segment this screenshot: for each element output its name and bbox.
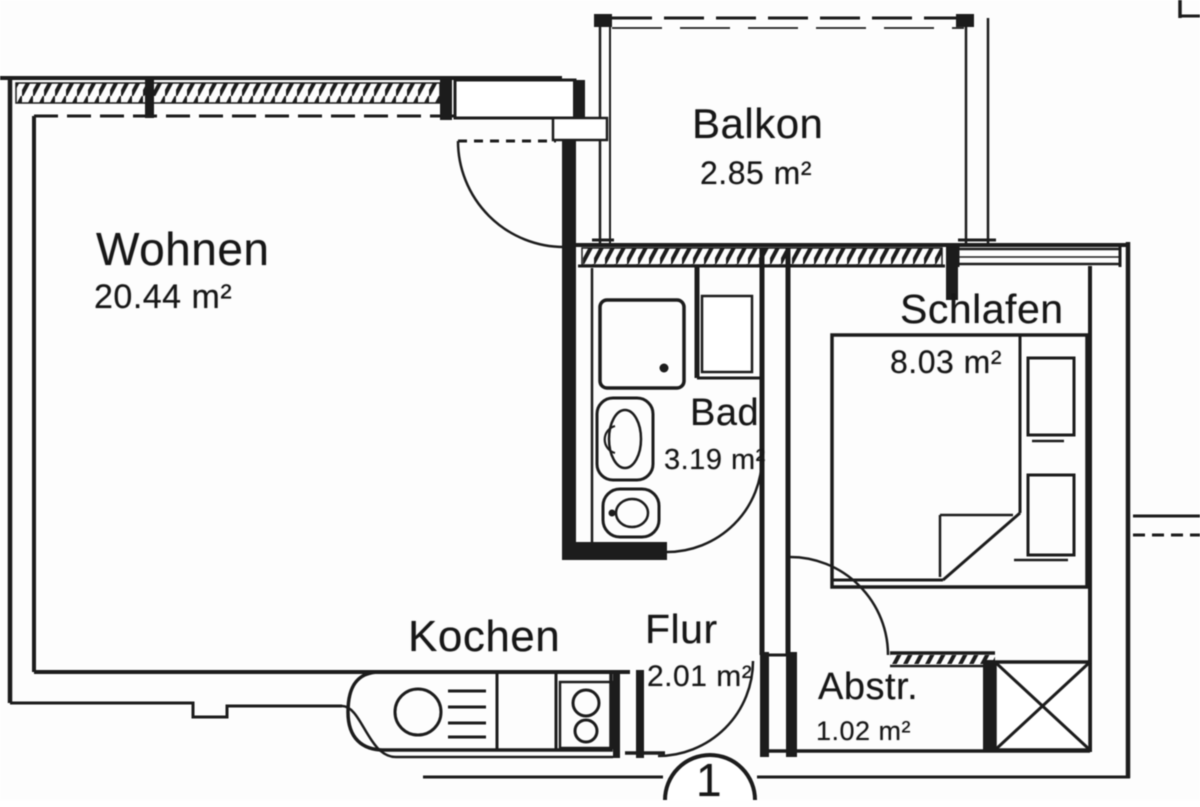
stove [560,682,612,748]
shower [600,300,684,388]
shaft [697,266,762,378]
bedroom-door-swing-arc [790,557,888,655]
bedroom [790,335,1087,655]
balcony-door [455,80,607,247]
room-label-bad: Bad [690,392,759,435]
sink [603,489,659,537]
bathtub [597,398,653,480]
kitchen-sink [395,689,441,735]
schlafen-window [958,245,1120,267]
pillow [1028,358,1074,441]
room-label-kochen: Kochen [408,612,560,662]
shaft-x-box [983,660,1090,752]
room-area-balkon: 2.85 m² [700,155,812,192]
floorplan-drawing [0,0,1200,800]
room-label-wohnen: Wohnen [96,222,270,276]
pillow [1014,475,1074,560]
room-label-abstellraum: Abstr. [818,666,918,709]
window-band-north [16,83,440,103]
room-area-schlafen: 8.03 m² [890,344,1002,381]
storage-room [760,652,1090,757]
room-area-bad: 3.19 m² [664,444,766,477]
room-label-balkon: Balkon [692,100,823,148]
drainboard [448,691,486,737]
balcony-door-swing-arc [458,141,564,247]
room-area-flur: 2.01 m² [647,660,752,694]
room-label-schlafen: Schlafen [900,286,1064,333]
room-area-abstellraum: 1.02 m² [816,716,911,747]
floorplan: Wohnen 20.44 m² Balkon 2.85 m² Bad 3.19 … [0,0,1200,800]
room-area-wohnen: 20.44 m² [94,278,232,317]
room-label-flur: Flur [645,606,718,653]
floor-indicator: 1 [688,753,730,807]
kitchen-counter [348,672,612,750]
